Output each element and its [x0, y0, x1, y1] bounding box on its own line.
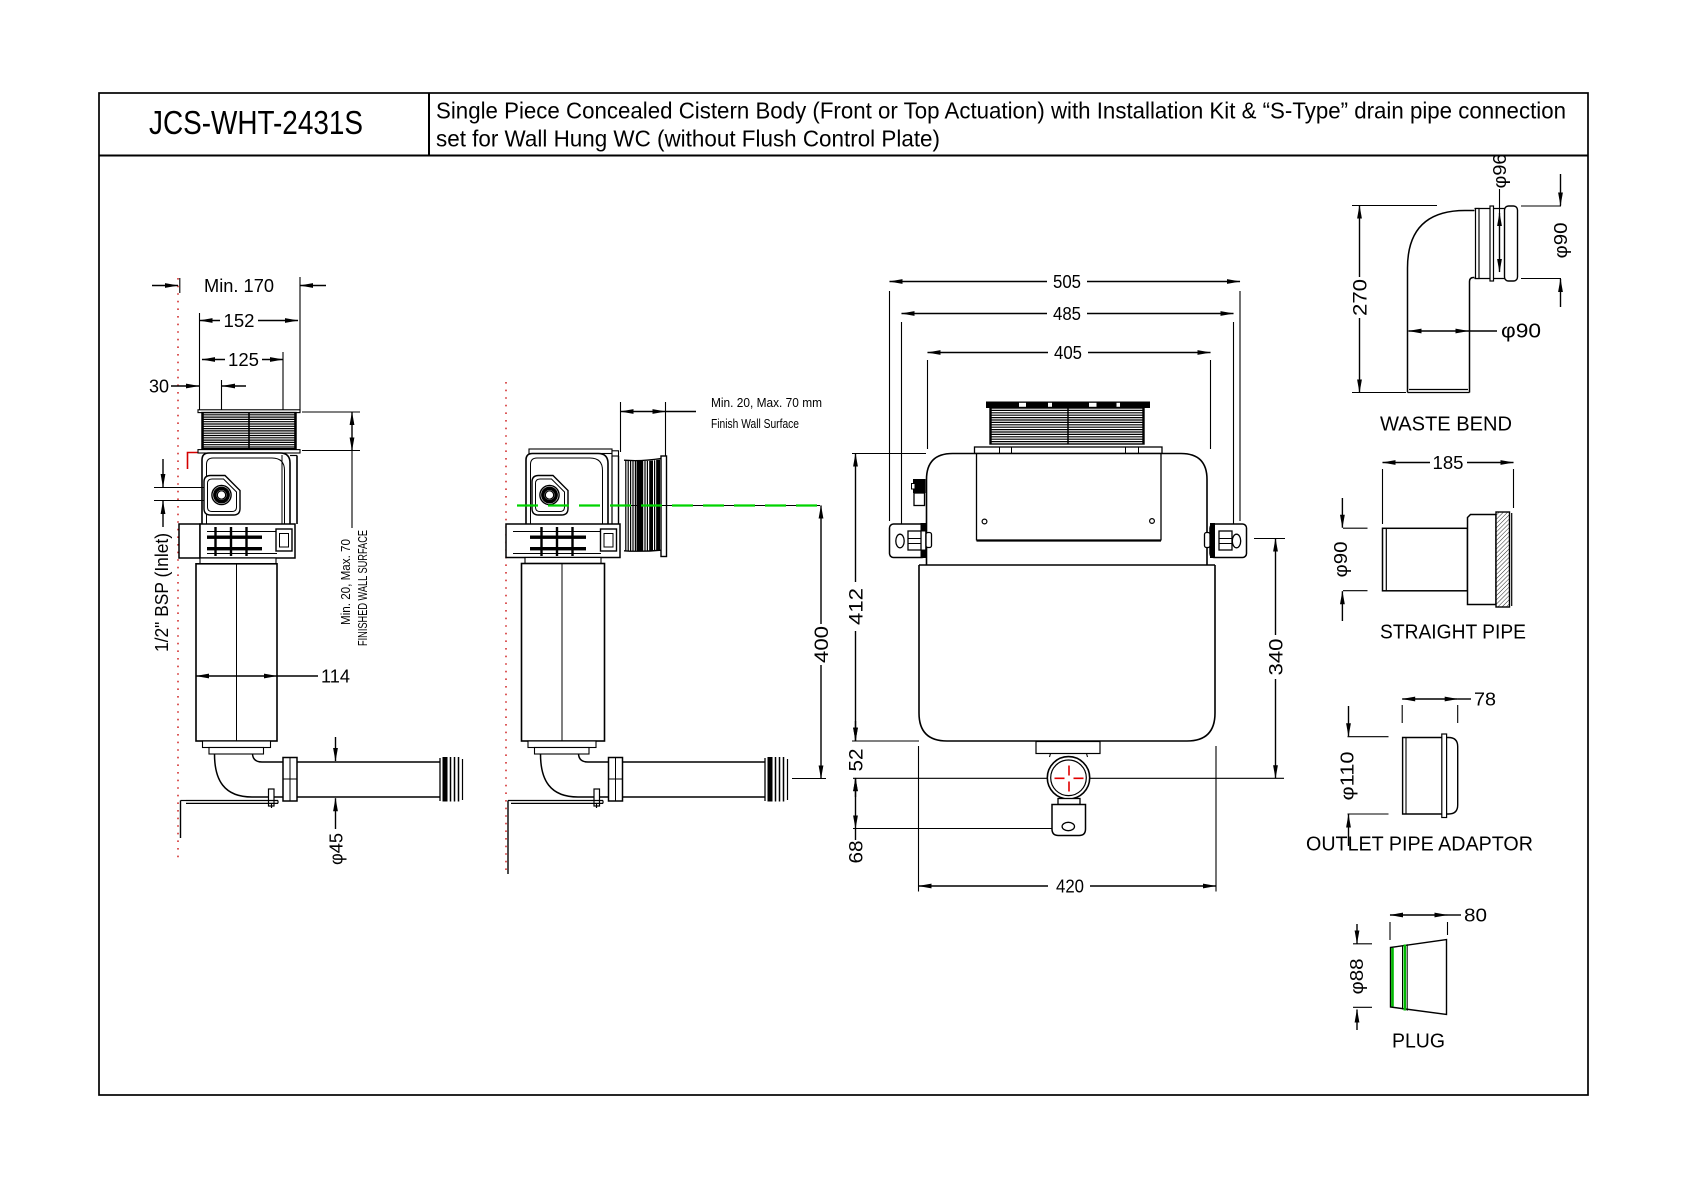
svg-text:80: 80: [1464, 906, 1487, 926]
svg-text:68: 68: [847, 841, 868, 864]
svg-text:400: 400: [812, 626, 833, 663]
svg-text:φ90: φ90: [1551, 223, 1571, 259]
svg-text:FINISHED WALL SURFACE: FINISHED WALL SURFACE: [356, 530, 370, 646]
svg-text:485: 485: [1053, 304, 1081, 324]
svg-text:125: 125: [228, 350, 259, 370]
svg-text:52: 52: [847, 749, 868, 772]
svg-text:set for Wall Hung WC (without: set for Wall Hung WC (without Flush Cont…: [436, 126, 940, 152]
svg-text:1/2" BSP (Inlet): 1/2" BSP (Inlet): [152, 533, 172, 652]
svg-text:φ96: φ96: [1490, 154, 1510, 189]
svg-text:φ45: φ45: [327, 833, 347, 865]
svg-text:114: 114: [321, 667, 350, 687]
svg-text:φ90: φ90: [1501, 321, 1541, 343]
svg-text:Min. 20, Max. 70: Min. 20, Max. 70: [339, 539, 353, 625]
svg-text:152: 152: [224, 311, 255, 331]
svg-text:505: 505: [1053, 272, 1081, 292]
svg-text:405: 405: [1054, 343, 1082, 363]
svg-text:φ88: φ88: [1347, 959, 1367, 995]
svg-text:270: 270: [1351, 279, 1372, 316]
svg-text:WASTE BEND: WASTE BEND: [1380, 414, 1512, 436]
svg-text:30: 30: [149, 377, 169, 397]
svg-text:Min. 170: Min. 170: [204, 276, 274, 296]
svg-text:78: 78: [1474, 690, 1496, 710]
svg-text:φ90: φ90: [1331, 542, 1351, 578]
svg-text:420: 420: [1056, 877, 1084, 897]
svg-text:Single Piece Concealed Cistern: Single Piece Concealed Cistern Body (Fro…: [436, 98, 1566, 124]
svg-text:340: 340: [1267, 639, 1288, 676]
svg-text:PLUG: PLUG: [1392, 1031, 1445, 1053]
svg-text:φ110: φ110: [1338, 752, 1358, 801]
svg-text:JCS-WHT-2431S: JCS-WHT-2431S: [149, 104, 363, 141]
svg-text:STRAIGHT PIPE: STRAIGHT PIPE: [1380, 622, 1526, 644]
svg-text:185: 185: [1433, 453, 1464, 473]
svg-text:Min. 20, Max. 70 mm: Min. 20, Max. 70 mm: [711, 396, 822, 410]
svg-text:412: 412: [847, 588, 868, 625]
svg-text:OUTLET PIPE ADAPTOR: OUTLET PIPE ADAPTOR: [1306, 834, 1533, 856]
svg-text:Finish Wall Surface: Finish Wall Surface: [711, 417, 799, 431]
